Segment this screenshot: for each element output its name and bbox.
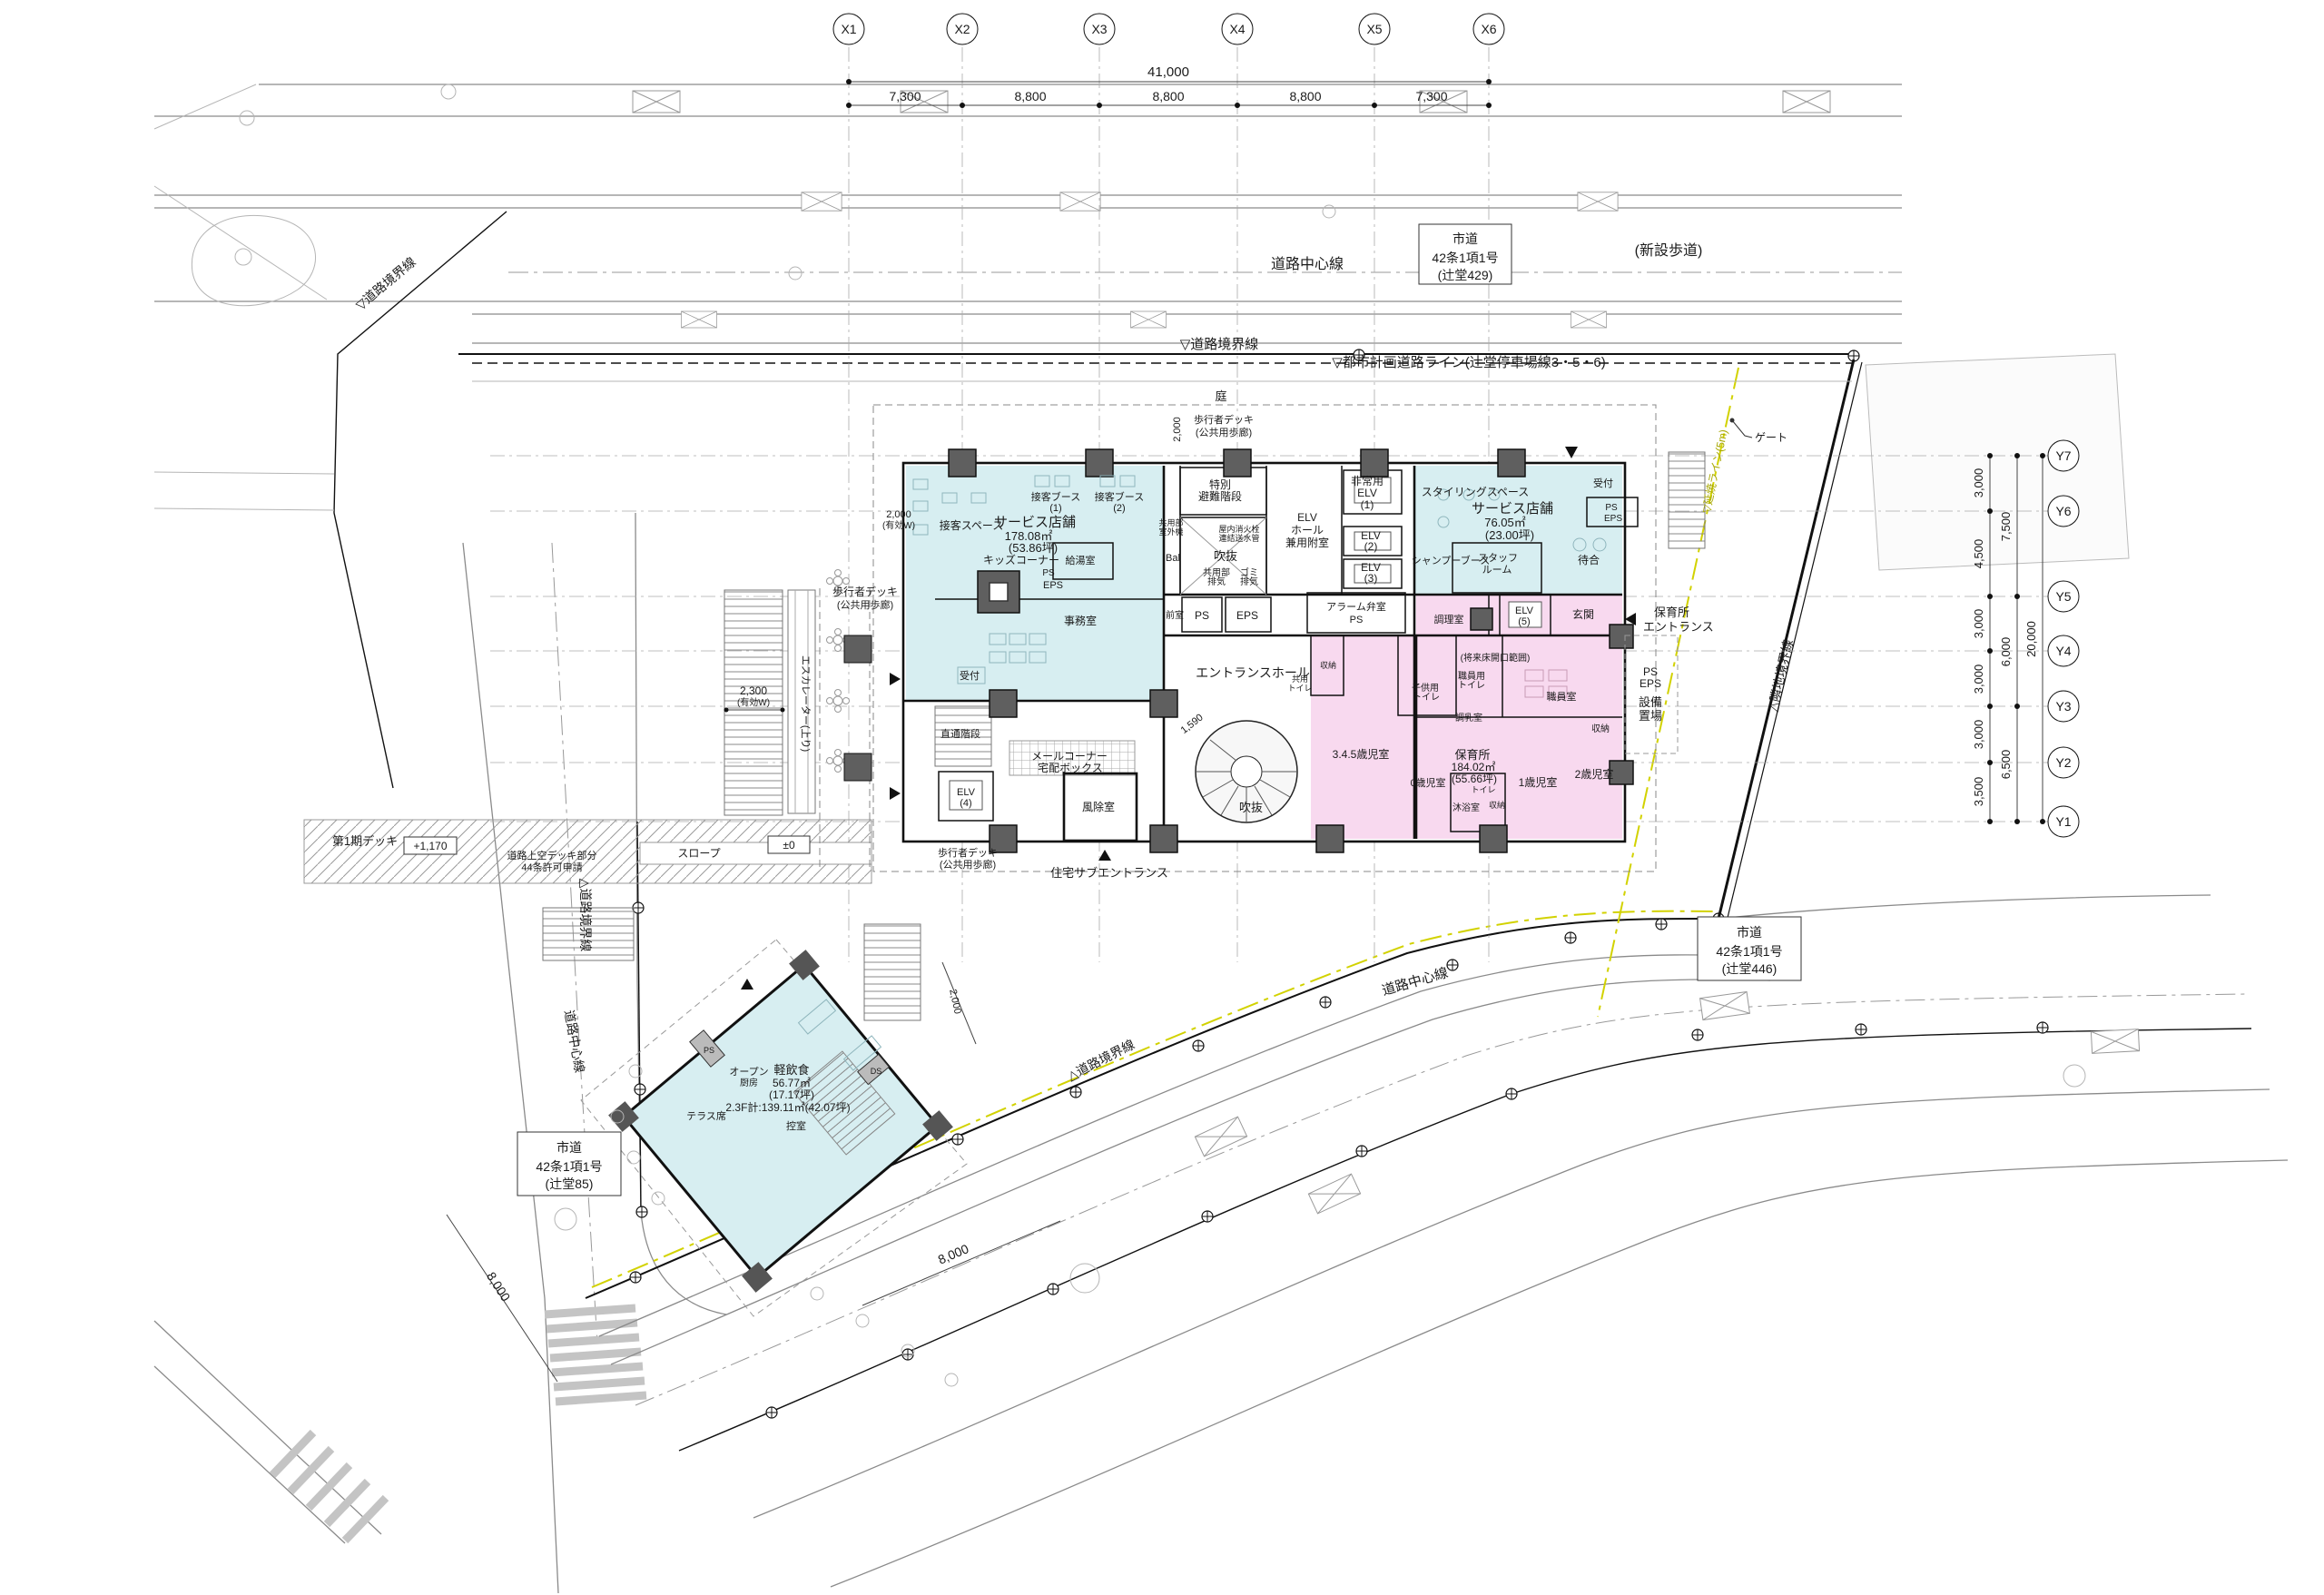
elv4-1: ELV — [957, 787, 976, 798]
shop1-ps: PS — [1042, 568, 1055, 578]
route429-line2: 42条1項1号 — [1432, 251, 1498, 265]
ps-label-east: PS — [1643, 665, 1658, 678]
deck-label-bottom-1: 歩行者デッキ — [938, 846, 998, 859]
shop1-eps: EPS — [1043, 580, 1063, 591]
alarm-room-1: アラーム弁室 — [1326, 600, 1386, 613]
level-1170-label: +1,170 — [413, 840, 447, 852]
terrace-label: テラス席 — [686, 1109, 726, 1122]
escape-stair-2: 避難階段 — [1198, 489, 1242, 503]
storage-label-2: 収納 — [1489, 800, 1505, 810]
x-seg-dim: 8,800 — [1152, 89, 1184, 103]
garden-label: 庭 — [1215, 389, 1226, 403]
elv-hall-2: ホール — [1291, 524, 1324, 537]
annex-back-room: 控室 — [786, 1119, 806, 1132]
kyoyo-exhaust-2: 排気 — [1207, 576, 1226, 587]
road-boundary-label-bottom: △道路境界線 — [1065, 1037, 1137, 1083]
city-planning-line-label: ▽都市計画道路ライン(辻堂停車場線3・5・6) — [1332, 355, 1606, 370]
hall-void-label: 吹抜 — [1239, 801, 1263, 814]
escape-stair-1: 特別 — [1209, 478, 1231, 491]
road-boundary-label-top: ▽道路境界線 — [1180, 336, 1259, 352]
equipment-yard-2: 置場 — [1639, 709, 1662, 723]
x-seg-dim: 8,800 — [1289, 89, 1321, 103]
grid-label-y4: Y4 — [2055, 644, 2071, 658]
deck-entry-arrow-1 — [890, 673, 901, 685]
nursery-entrance-1: 保育所 — [1654, 606, 1689, 619]
shop2-entrance-arrow — [1565, 447, 1578, 458]
waiting-label: 待合 — [1578, 553, 1600, 566]
grid-label-x3: X3 — [1091, 22, 1107, 36]
windbreak-label: 風除室 — [1082, 800, 1115, 813]
y-seg-dim: 3,000 — [1972, 720, 1985, 750]
kids-wc-2: トイレ — [1413, 693, 1440, 703]
annex-total-area: 2.3F計:139.11㎡(42.07坪) — [725, 1100, 850, 1114]
emergency-elv-3: (1) — [1361, 498, 1374, 511]
gate-label: ゲート — [1755, 431, 1787, 444]
genkan-label: 玄関 — [1572, 607, 1594, 621]
sub-entrance-arrow — [1098, 850, 1111, 861]
styling-label: スタイリングスペース — [1422, 486, 1530, 498]
road-centerline-label-top: 道路中心線 — [1271, 256, 1344, 272]
route85-line3: (辻堂85) — [546, 1177, 594, 1191]
deck-over-road-1: 道路上空デッキ部分 — [507, 849, 597, 861]
annex-name: 軽飲食 — [773, 1063, 809, 1077]
x-seg-dim: 8,800 — [1014, 89, 1046, 103]
grid-label-y3: Y3 — [2055, 699, 2071, 714]
shop1-name: サービス店舗 — [994, 515, 1076, 530]
dim-2000-top: 2,000 — [1172, 417, 1183, 442]
outdoor-unit-1: 共用部 — [1158, 517, 1183, 527]
grid-label-x5: X5 — [1366, 22, 1382, 36]
road-centerline-label-left: 道路中心線 — [562, 1009, 587, 1074]
y-group-dim: 6,000 — [1999, 637, 2013, 667]
grid-label-x2: X2 — [954, 22, 970, 36]
annex-ps-label: PS — [704, 1046, 714, 1055]
room-345yo-label: 3.4.5歳児室 — [1333, 747, 1390, 761]
outdoor-unit-2: 室外機 — [1158, 527, 1183, 537]
y-seg-dim: 4,500 — [1972, 539, 1985, 569]
dim-2000w-2: (有効W) — [882, 519, 915, 531]
route446-line1: 市道 — [1737, 925, 1762, 940]
deck-over-road-2: 44条許可申請 — [521, 861, 582, 873]
storage-label-3: 収納 — [1320, 660, 1336, 670]
slope-label: スロープ — [677, 847, 720, 860]
y-group-dim: 6,500 — [1999, 750, 2013, 780]
y-group-dim: 7,500 — [1999, 512, 2013, 542]
core-ps: PS — [1195, 609, 1209, 622]
hydrant-2: 連結送水管 — [1218, 533, 1259, 543]
bath-label: 沐浴室 — [1452, 802, 1480, 813]
elv-hall-1: ELV — [1297, 511, 1317, 524]
annex-tsubo: (17.17坪) — [769, 1088, 814, 1101]
x-total-dim: 41,000 — [1147, 64, 1189, 80]
staff-room-1: スタッフ — [1478, 552, 1518, 564]
x-seg-dim: 7,300 — [889, 89, 921, 103]
y-seg-dim: 3,000 — [1972, 609, 1985, 639]
shop2-reception: 受付 — [1593, 478, 1613, 489]
top-road — [154, 84, 1902, 343]
nursery-entrance-arrow — [1625, 613, 1636, 625]
kids-corner-label: キッズコーナー — [983, 553, 1059, 566]
new-sidewalk-label: (新設歩道) — [1635, 242, 1703, 259]
grid-label-x4: X4 — [1229, 22, 1245, 36]
mail-corner-1: メールコーナー — [1031, 750, 1108, 763]
nursery-area: 184.02㎡ — [1452, 761, 1496, 773]
shop2-tsubo: (23.00坪) — [1485, 528, 1534, 542]
kitchen-label: 調理室 — [1434, 613, 1464, 625]
grid-label-y6: Y6 — [2055, 504, 2071, 518]
grid-label-y2: Y2 — [2055, 755, 2071, 770]
milk-room-label: 調乳室 — [1455, 712, 1482, 724]
route446-line3: (辻堂446) — [1722, 961, 1777, 976]
open-kitchen-2: 厨房 — [740, 1077, 758, 1088]
elv-hall-3: 兼用附室 — [1285, 536, 1329, 549]
nursery-name: 保育所 — [1454, 748, 1490, 762]
shop2-area: 76.05㎡ — [1484, 516, 1526, 529]
direct-stair-label: 直通階段 — [940, 727, 980, 740]
nursery-entrance-2: エントランス — [1643, 620, 1714, 634]
route85-line1: 市道 — [556, 1140, 582, 1155]
equipment-yard-1: 設備 — [1639, 695, 1662, 709]
nursery-tsubo: (55.66坪) — [1452, 773, 1497, 785]
mail-corner-2: 宅配ボックス — [1038, 761, 1103, 774]
storage-label-1: 収納 — [1591, 723, 1610, 734]
deck-label-bottom-2: (公共用歩廊) — [940, 858, 996, 871]
shop2-eps: EPS — [1604, 514, 1622, 524]
route429-line3: (辻堂429) — [1438, 268, 1493, 282]
phase1-deck-label: 第1期デッキ — [332, 834, 398, 848]
grid-label-y5: Y5 — [2055, 589, 2071, 604]
deck-label-left-1: 歩行者デッキ — [832, 585, 898, 598]
grid-label-x6: X6 — [1481, 22, 1496, 36]
shop2-name: サービス店舗 — [1472, 501, 1553, 517]
left-road — [154, 472, 726, 1593]
stair-to-annex — [864, 924, 921, 1020]
alarm-room-2: PS — [1350, 615, 1364, 625]
east-stair — [1669, 452, 1705, 548]
route429-line1: 市道 — [1452, 231, 1478, 246]
shared-wc-2: トイレ — [1287, 684, 1312, 693]
kyuto-label: 給湯室 — [1066, 554, 1096, 566]
annex-ds-label: DS — [871, 1067, 882, 1076]
elv2-2: (2) — [1364, 540, 1378, 553]
grid-label-y7: Y7 — [2055, 448, 2071, 463]
dim-8000-left: 8,000 — [484, 1269, 514, 1304]
y-total-dim: 20,000 — [2024, 621, 2038, 657]
core-eps: EPS — [1236, 609, 1258, 622]
phase1-deck — [304, 570, 921, 1021]
room-2yo-label: 2歳児室 — [1575, 767, 1614, 781]
booth1-2: (1) — [1049, 503, 1061, 514]
staff-wc-2: トイレ — [1458, 681, 1485, 691]
staff-room-2: ルーム — [1482, 564, 1512, 576]
bal-label: Bal — [1166, 553, 1180, 564]
y-seg-dim: 3,500 — [1972, 777, 1985, 807]
escalator-label: エスカレーター(上り) — [800, 655, 812, 752]
level-0-label: ±0 — [783, 839, 795, 852]
deck-entry-arrow-2 — [890, 787, 901, 800]
dim-2300w-1: 2,300 — [740, 684, 767, 697]
core-void-label: 吹抜 — [1214, 549, 1237, 563]
deck-label-top-1: 歩行者デッキ — [1194, 413, 1254, 426]
y-seg-dim: 3,000 — [1972, 468, 1985, 498]
route85-line2: 42条1項1号 — [536, 1159, 602, 1174]
anteroom-label: 前室 — [1166, 609, 1184, 621]
emergency-elv-2: ELV — [1357, 487, 1377, 499]
deck-label-left-2: (公共用歩廊) — [837, 598, 893, 611]
eps-label-east: EPS — [1640, 677, 1661, 690]
gomi-exhaust-2: 排気 — [1240, 576, 1258, 587]
shop1-tsubo: (53.86坪) — [1009, 541, 1058, 555]
dim-2000w-1: 2,000 — [886, 509, 911, 520]
booth2-2: (2) — [1113, 503, 1125, 514]
future-opening-label: (将来床開口範囲) — [1461, 652, 1531, 664]
elv5-1: ELV — [1515, 606, 1534, 616]
y-seg-dim: 3,000 — [1972, 665, 1985, 694]
room-1yo-label: 1歳児室 — [1519, 775, 1558, 789]
grid-label-y1: Y1 — [2055, 814, 2071, 829]
open-kitchen-1: オープン — [729, 1066, 768, 1078]
annex-dim-2000: 2,000 — [947, 989, 962, 1015]
deck-label-top-2: (公共用歩廊) — [1196, 426, 1252, 438]
booth1-1: 接客ブース — [1031, 490, 1080, 503]
bottom-left-roads — [154, 1321, 386, 1543]
room-0yo-label: 0歳児室 — [1410, 776, 1445, 789]
elv4-2: (4) — [960, 798, 971, 809]
annex-entrance-arrow — [741, 979, 753, 989]
x-seg-dim: 7,300 — [1415, 89, 1447, 103]
road-boundary-label-sw: △道路境界線 — [578, 879, 593, 952]
sub-entrance-label: 住宅サブエントランス — [1050, 866, 1168, 880]
emergency-elv-1: 非常用 — [1351, 475, 1384, 487]
shop1-reception: 受付 — [960, 670, 980, 682]
annex-area: 56.77㎡ — [773, 1077, 811, 1089]
grid-label-x1: X1 — [841, 22, 856, 36]
site-plan: X1 X2 X3 X4 X5 X6 41,000 7,300 8,800 8,8… — [0, 0, 2324, 1595]
road-boundary-label-nw: ▽道路境界線 — [353, 254, 419, 312]
shared-wc-1: 共用 — [1292, 674, 1308, 684]
staff-room-label: 職員室 — [1547, 690, 1577, 703]
office-label: 事務室 — [1064, 614, 1097, 627]
elv3-2: (3) — [1364, 572, 1378, 585]
booth2-1: 接客ブース — [1095, 490, 1144, 503]
hydrant-1: 屋内消火栓 — [1218, 524, 1259, 534]
adjacent-boundary-label: △隣地境界線 — [1765, 638, 1796, 713]
shop2-ps: PS — [1605, 503, 1618, 513]
elv5-2: (5) — [1518, 616, 1530, 627]
nursery-wc-label: トイレ — [1471, 785, 1495, 794]
route446-line2: 42条1項1号 — [1716, 944, 1782, 959]
dim-2300w-2: (有効W) — [737, 696, 770, 708]
